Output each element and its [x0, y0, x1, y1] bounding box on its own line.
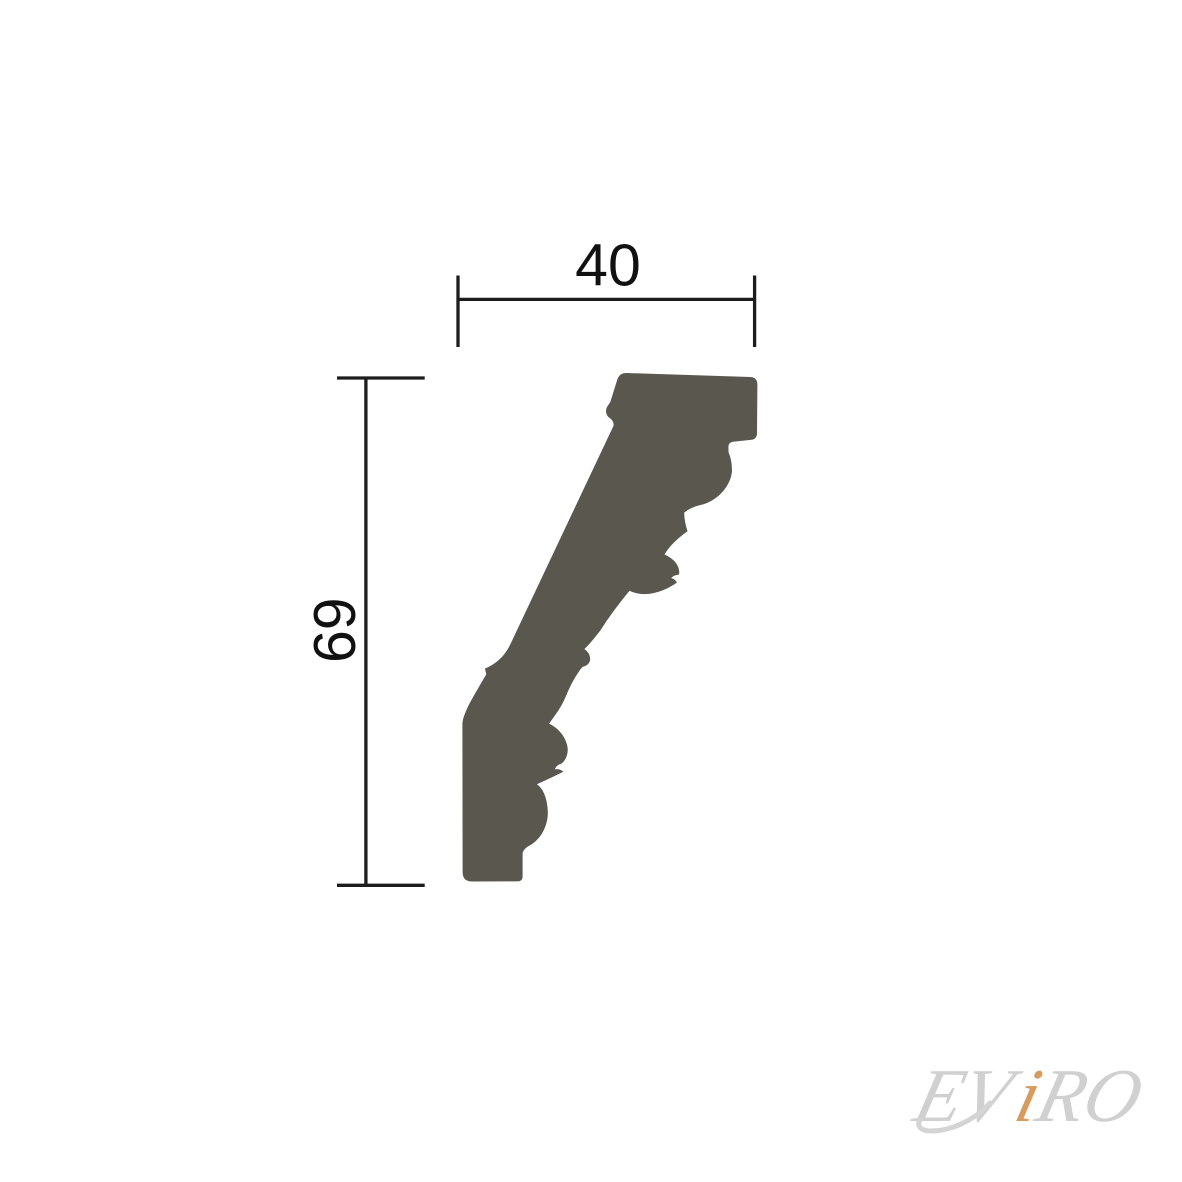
svg-text:40: 40 — [575, 233, 641, 299]
svg-text:69: 69 — [301, 597, 367, 663]
svg-text:RO: RO — [1028, 1053, 1151, 1138]
